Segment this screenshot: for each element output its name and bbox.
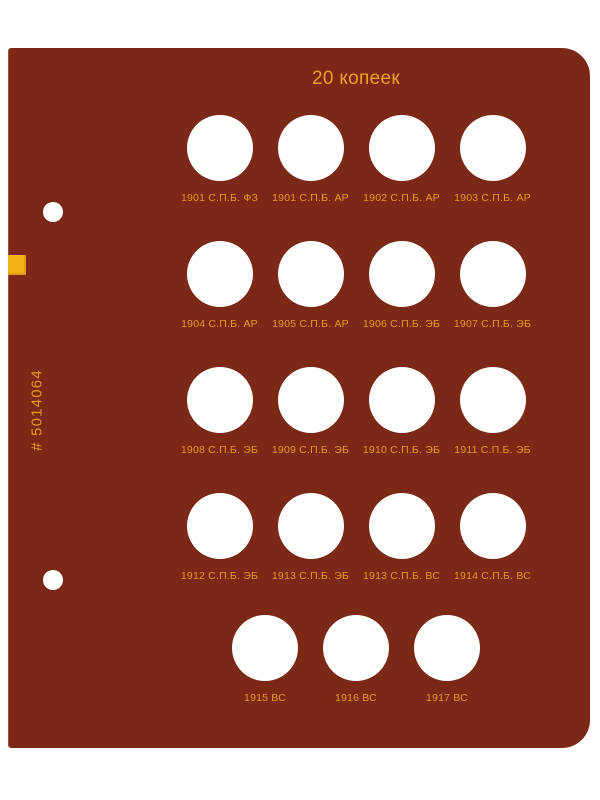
page-title: 20 копеек [174, 68, 538, 90]
coin-slot-label: 1907 С.П.Б. ЭБ [454, 318, 531, 330]
coin-slot-cell: 1901 С.П.Б. АР [265, 115, 356, 204]
coin-slot-label: 1910 С.П.Б. ЭБ [363, 444, 440, 456]
coin-slot [187, 367, 253, 433]
coin-slot-label: 1904 С.П.Б. АР [181, 318, 258, 330]
coin-slot [460, 493, 526, 559]
coin-slot [414, 615, 480, 681]
coin-slot-cell: 1912 С.П.Б. ЭБ [174, 493, 265, 582]
coin-row: 1912 С.П.Б. ЭБ 1913 С.П.Б. ЭБ 1913 С.П.Б… [174, 493, 538, 582]
serial-number: # 5014064 [29, 369, 46, 451]
coin-slot-label: 1909 С.П.Б. ЭБ [272, 444, 349, 456]
coin-slot-label: 1902 С.П.Б. АР [363, 192, 440, 204]
coin-slot-label: 1901 С.П.Б. АР [272, 192, 349, 204]
coin-slot [187, 241, 253, 307]
coin-slot-label: 1914 С.П.Б. ВС [454, 570, 531, 582]
coin-slot [278, 493, 344, 559]
coin-slot-cell: 1901 С.П.Б. ФЗ [174, 115, 265, 204]
coin-row: 1908 С.П.Б. ЭБ 1909 С.П.Б. ЭБ 1910 С.П.Б… [174, 367, 538, 456]
coin-slot-cell: 1917 ВС [402, 615, 493, 704]
binder-hole-top [43, 202, 63, 222]
coin-slot-cell: 1911 С.П.Б. ЭБ [447, 367, 538, 456]
coin-slot [460, 241, 526, 307]
coin-slot-cell: 1902 С.П.Б. АР [356, 115, 447, 204]
coin-slot-label: 1913 С.П.Б. ВС [363, 570, 440, 582]
coin-slot-cell: 1914 С.П.Б. ВС [447, 493, 538, 582]
coin-slot-cell: 1913 С.П.Б. ВС [356, 493, 447, 582]
binder-hole-bottom [43, 570, 63, 590]
coin-slot-cell: 1916 ВС [311, 615, 402, 704]
coin-slot [369, 115, 435, 181]
coin-slot-cell: 1913 С.П.Б. ЭБ [265, 493, 356, 582]
coin-slot-label: 1903 С.П.Б. АР [454, 192, 531, 204]
coin-row: 1901 С.П.Б. ФЗ 1901 С.П.Б. АР 1902 С.П.Б… [174, 115, 538, 204]
coin-slot-label: 1906 С.П.Б. ЭБ [363, 318, 440, 330]
coin-slot-label: 1908 С.П.Б. ЭБ [181, 444, 258, 456]
coin-slot-label: 1913 С.П.Б. ЭБ [272, 570, 349, 582]
coin-slot-label: 1905 С.П.Б. АР [272, 318, 349, 330]
coin-slot [369, 241, 435, 307]
coin-slot [323, 615, 389, 681]
coin-slot [460, 367, 526, 433]
coin-slot-label: 1911 С.П.Б. ЭБ [454, 444, 530, 456]
coin-slot-cell: 1915 ВС [220, 615, 311, 704]
coin-slot-label: 1916 ВС [335, 692, 377, 704]
coin-row: 1904 С.П.Б. АР 1905 С.П.Б. АР 1906 С.П.Б… [174, 241, 538, 330]
coin-slot [232, 615, 298, 681]
coin-slot [460, 115, 526, 181]
spine-tab [8, 255, 26, 275]
coin-slot [278, 241, 344, 307]
coin-slot-label: 1917 ВС [426, 692, 468, 704]
coin-row: 1915 ВС 1916 ВС 1917 ВС [174, 615, 538, 704]
coin-slot-cell: 1908 С.П.Б. ЭБ [174, 367, 265, 456]
coin-slot [369, 493, 435, 559]
coin-slot-cell: 1910 С.П.Б. ЭБ [356, 367, 447, 456]
coin-slot-cell: 1905 С.П.Б. АР [265, 241, 356, 330]
coin-slot-cell: 1904 С.П.Б. АР [174, 241, 265, 330]
coin-slot-label: 1915 ВС [244, 692, 286, 704]
coin-slot-cell: 1906 С.П.Б. ЭБ [356, 241, 447, 330]
coin-slot-label: 1901 С.П.Б. ФЗ [181, 192, 258, 204]
album-page: 20 копеек # 5014064 1901 С.П.Б. ФЗ 1901 … [8, 48, 590, 748]
coin-slot [278, 115, 344, 181]
coin-slot-cell: 1903 С.П.Б. АР [447, 115, 538, 204]
coin-slot [187, 493, 253, 559]
coin-slot [369, 367, 435, 433]
coin-slot [278, 367, 344, 433]
coin-slot-cell: 1909 С.П.Б. ЭБ [265, 367, 356, 456]
coin-slot-label: 1912 С.П.Б. ЭБ [181, 570, 258, 582]
coin-slot-cell: 1907 С.П.Б. ЭБ [447, 241, 538, 330]
coin-slot [187, 115, 253, 181]
